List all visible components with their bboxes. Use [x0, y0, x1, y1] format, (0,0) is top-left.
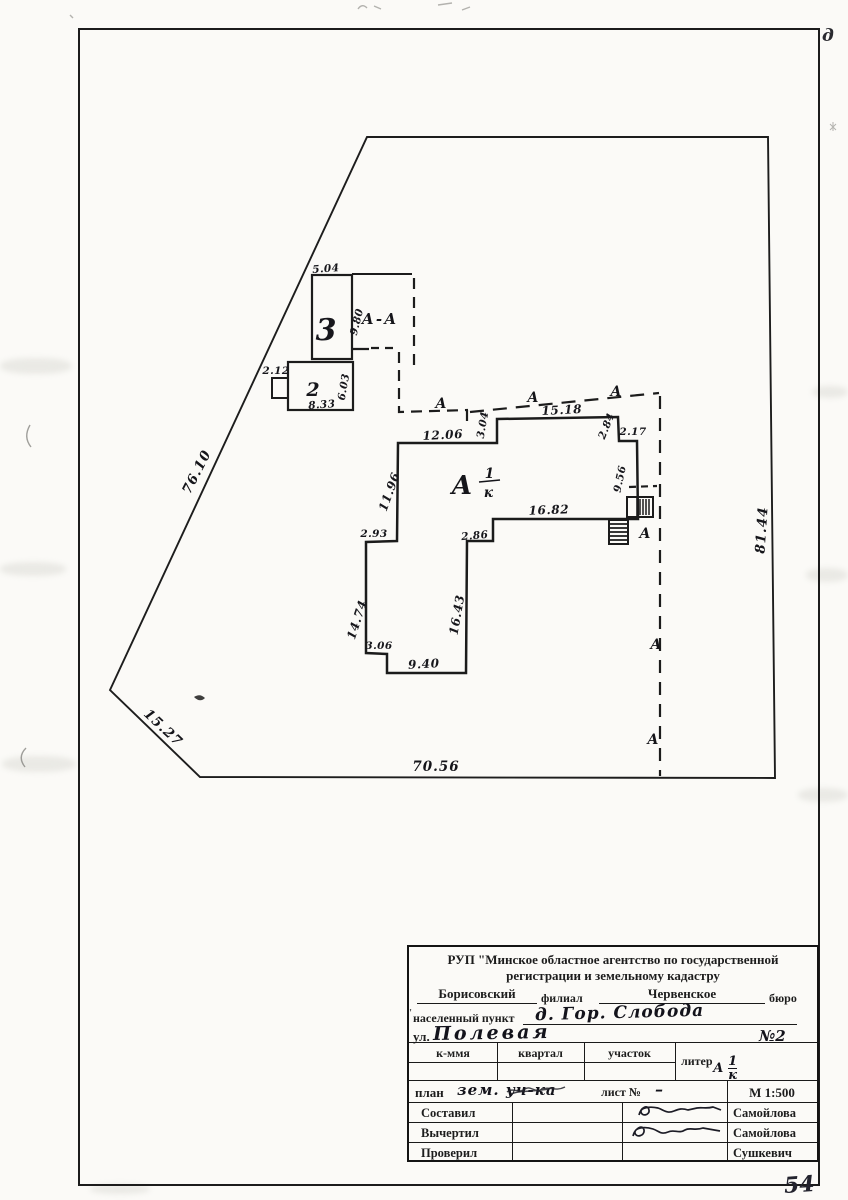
liter-num: 1	[728, 1055, 737, 1068]
section-mark-a: А	[526, 390, 538, 406]
liter-value: А 1к	[713, 1055, 737, 1082]
plan-label: план	[415, 1085, 444, 1101]
stray-pen-mark: '	[409, 1007, 412, 1019]
name-sostavil: Самойлова	[733, 1106, 796, 1121]
building-2-dim-height: 6.03	[336, 373, 353, 402]
section-mark-a: А	[434, 396, 446, 412]
rule	[675, 1042, 676, 1080]
dim-right2: 9.56	[612, 464, 629, 493]
dim-bottom: 9.40	[408, 656, 440, 672]
main-building-liter-num: 1	[485, 466, 495, 482]
liter-den: к	[728, 1068, 737, 1082]
dim-right-step: 2.17	[618, 426, 646, 438]
building-2-label: 2	[305, 379, 319, 401]
stairs-icon	[609, 520, 628, 544]
col-header-uchastok: участок	[584, 1046, 675, 1061]
dim-inner-right: 16.43	[447, 594, 468, 636]
scale-value: М 1:500	[727, 1085, 817, 1101]
row-label-sostavil: Составил	[421, 1106, 475, 1121]
title-block: РУП "Минское областное агентство по госу…	[407, 945, 819, 1162]
section-area-label: А-А	[361, 310, 399, 328]
dim-step-top: 3.04	[475, 411, 492, 440]
dim-top1: 12.06	[422, 427, 463, 443]
row-label-proveril: Проверил	[421, 1146, 477, 1161]
scan-specks	[21, 3, 836, 767]
dim-top2: 15.18	[541, 402, 582, 418]
dim-step-right: 2.86	[460, 529, 489, 543]
section-mark-a: А	[638, 526, 650, 542]
rule	[409, 1062, 675, 1063]
porch-hatch-icon	[627, 497, 653, 517]
liter-fraction: 1к	[728, 1055, 737, 1082]
col-header-kvartal: квартал	[497, 1046, 584, 1061]
rule	[409, 1122, 817, 1123]
dim-step-left: 2.93	[359, 528, 387, 540]
rule	[409, 1142, 817, 1143]
parcel-dim-bottom: 70.56	[412, 759, 459, 775]
scanned-sheet: 76.10 15.27 70.56 81.44 3 5.04 9.80 2 2.…	[0, 0, 848, 1200]
signature-vychertil	[627, 1122, 723, 1140]
section-mark-a: А	[649, 637, 661, 653]
parcel-dim-right: 81.44	[752, 506, 771, 554]
dim-left1: 11.96	[376, 470, 403, 513]
building-2: 2 2.12 8.33 6.03	[261, 362, 353, 412]
signature-sostavil	[631, 1102, 723, 1120]
building-2-dim-porch: 2.12	[261, 365, 289, 377]
col-header-kmya: к-ммя	[409, 1046, 497, 1061]
section-mark-a: А	[609, 384, 621, 400]
section-mark-a: А	[646, 732, 658, 748]
main-building: А 1 к 12.06 3.04 15.18 2.84 2.17 9.56 11…	[344, 402, 653, 673]
building-3-label: 3	[316, 313, 337, 348]
main-building-liter-den: к	[484, 485, 494, 501]
liter-letter: А	[713, 1061, 724, 1076]
dim-bottom-inner: 16.82	[528, 502, 569, 517]
correction-scribble	[505, 1083, 567, 1097]
rule	[409, 1102, 817, 1103]
parcel-outline: 76.10 15.27 70.56 81.44	[110, 137, 775, 778]
parcel-dim-left: 76.10	[179, 447, 215, 496]
page-number: 54	[783, 1171, 815, 1199]
section-marks: А А А А А А	[434, 384, 661, 748]
rule	[622, 1102, 623, 1160]
liter-label: литер	[681, 1054, 713, 1069]
dim-step-bottom: 3.06	[365, 640, 392, 652]
name-vychertil: Самойлова	[733, 1126, 796, 1141]
agency-name-line1: РУП "Минское областное агентство по госу…	[409, 952, 817, 968]
dim-right1: 2.84	[596, 411, 618, 442]
agency-name-line2: регистрации и земельному кадастру	[409, 968, 817, 984]
main-building-letter: А	[449, 471, 472, 501]
building-3-dim-width: 5.04	[312, 262, 340, 276]
row-label-vychertil: Вычертил	[421, 1126, 479, 1141]
sheet-value: –	[655, 1080, 663, 1099]
parcel-dim-left-lower: 15.27	[140, 706, 185, 750]
corner-pen-mark: д	[822, 26, 834, 46]
rule	[512, 1102, 513, 1160]
building-2-dim-width: 8.33	[308, 398, 336, 412]
branch-name: Борисовский	[417, 986, 537, 1004]
ink-speck	[194, 695, 205, 700]
sheet-label: лист №	[601, 1085, 641, 1100]
name-proveril: Сушкевич	[733, 1146, 792, 1161]
rule	[409, 1042, 817, 1043]
